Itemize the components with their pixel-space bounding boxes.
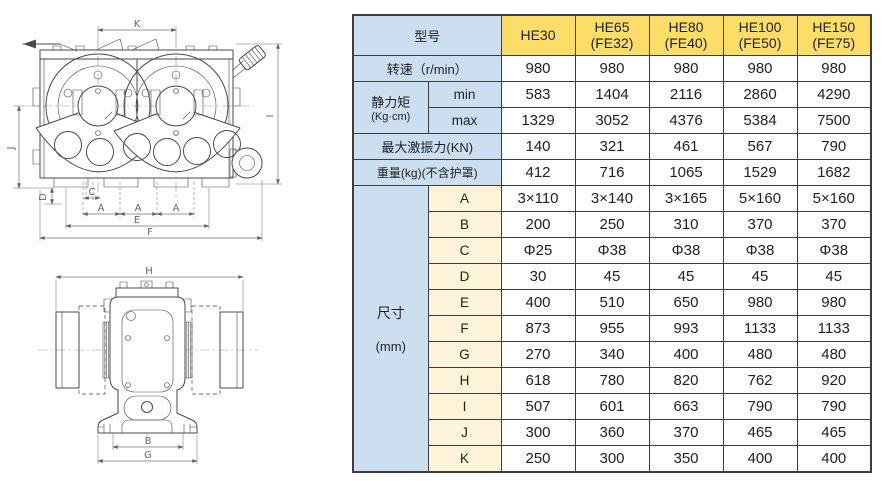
table-header-row: 型号 HE30 HE65 (FE32) HE80 (FE40) HE100 (F… <box>353 15 871 56</box>
speed-value-cell: 980 <box>501 56 575 82</box>
dim-key-cell: F <box>428 316 501 342</box>
dim-value-cell: 250 <box>501 446 575 473</box>
dim-row-G: G 270 340 400 480 480 <box>353 342 871 368</box>
dim-value-cell: 601 <box>575 394 649 420</box>
dim-row-B: B 200 250 310 370 370 <box>353 212 871 238</box>
speed-value-cell: 980 <box>723 56 797 82</box>
moment-max-cell: 4376 <box>649 108 723 134</box>
dim-key-cell: J <box>428 420 501 446</box>
weight-value-cell: 1065 <box>649 160 723 186</box>
moment-min-cell: 2116 <box>649 82 723 108</box>
dim-value-cell: 618 <box>501 368 575 394</box>
dim-value-cell: 663 <box>649 394 723 420</box>
dim-value-cell: 5×160 <box>797 186 871 212</box>
dim-label-a3: A <box>173 203 180 214</box>
dim-value-cell: 400 <box>501 290 575 316</box>
side-view-drawing: H B G <box>0 250 345 481</box>
dim-key-cell: G <box>428 342 501 368</box>
dim-value-cell: 310 <box>649 212 723 238</box>
dims-label-text: 尺寸 <box>354 303 428 323</box>
side-housing <box>98 281 197 433</box>
dim-label-f: F <box>147 227 153 238</box>
model-header-col-0: HE30 <box>501 15 575 56</box>
dim-label-h: H <box>145 266 153 277</box>
dim-label-a2: A <box>135 203 142 214</box>
speed-row-label: 转速（r/min） <box>353 56 501 82</box>
dim-value-cell: 30 <box>501 264 575 290</box>
dim-key-cell: H <box>428 368 501 394</box>
dim-value-cell: 873 <box>501 316 575 342</box>
dim-key-cell: I <box>428 394 501 420</box>
model-header-col-1: HE65 (FE32) <box>575 15 649 56</box>
force-row-label: 最大激振力(KN) <box>353 134 501 160</box>
dim-value-cell: 350 <box>649 446 723 473</box>
dims-unit-text: (mm) <box>354 339 428 354</box>
dim-value-cell: 465 <box>723 420 797 446</box>
dim-label-g: G <box>144 450 152 461</box>
direction-arrow <box>23 40 36 49</box>
dim-value-cell: 762 <box>723 368 797 394</box>
weight-value-cell: 412 <box>501 160 575 186</box>
dim-label-d: D <box>38 193 49 201</box>
force-value-cell: 140 <box>501 134 575 160</box>
dim-value-cell: 200 <box>501 212 575 238</box>
moment-row-label: 静力矩 (Kg·cm) <box>353 82 428 134</box>
dim-label-e: E <box>134 215 140 226</box>
dim-label-b: B <box>145 436 152 447</box>
dim-key-cell: K <box>428 446 501 473</box>
force-value-cell: 567 <box>723 134 797 160</box>
moment-max-cell: 7500 <box>797 108 871 134</box>
dim-row-D: D 30 45 45 45 45 <box>353 264 871 290</box>
force-value-cell: 461 <box>649 134 723 160</box>
dims-row-label: 尺寸 (mm) <box>353 186 428 473</box>
force-value-cell: 790 <box>797 134 871 160</box>
dim-key-cell: D <box>428 264 501 290</box>
speed-value-cell: 980 <box>575 56 649 82</box>
dim-label-a1: A <box>98 203 105 214</box>
moment-min-row: 静力矩 (Kg·cm) min 583 1404 2116 2860 4290 <box>353 82 871 108</box>
dim-value-cell: 3×140 <box>575 186 649 212</box>
dim-value-cell: 3×110 <box>501 186 575 212</box>
breather-plug <box>233 44 267 78</box>
moment-max-cell: 5384 <box>723 108 797 134</box>
catalog-page: K I J D C A A A E F <box>0 0 890 481</box>
dim-value-cell: 920 <box>797 368 871 394</box>
moment-min-cell: 583 <box>501 82 575 108</box>
dim-value-cell: Φ38 <box>723 238 797 264</box>
moment-max-row: max 1329 3052 4376 5384 7500 <box>353 108 871 134</box>
moment-unit-text: (Kg·cm) <box>354 111 428 123</box>
weight-value-cell: 716 <box>575 160 649 186</box>
moment-max-label: max <box>428 108 501 134</box>
spec-table: 型号 HE30 HE65 (FE32) HE80 (FE40) HE100 (F… <box>352 14 872 473</box>
dim-row-A: 尺寸 (mm) A 3×110 3×140 3×165 5×160 5×160 <box>353 186 871 212</box>
dim-value-cell: 45 <box>797 264 871 290</box>
dim-value-cell: 400 <box>723 446 797 473</box>
moment-min-cell: 1404 <box>575 82 649 108</box>
dim-value-cell: 300 <box>501 420 575 446</box>
dim-value-cell: 400 <box>649 342 723 368</box>
speed-value-cell: 980 <box>649 56 723 82</box>
dim-label-i: I <box>265 115 276 118</box>
force-value-cell: 321 <box>575 134 649 160</box>
dim-value-cell: 45 <box>723 264 797 290</box>
moment-min-cell: 2860 <box>723 82 797 108</box>
dim-value-cell: 790 <box>723 394 797 420</box>
weight-value-cell: 1529 <box>723 160 797 186</box>
model-header-col-4: HE150 (FE75) <box>797 15 871 56</box>
dim-value-cell: Φ38 <box>797 238 871 264</box>
dim-label-k: K <box>134 19 141 30</box>
dim-value-cell: 1133 <box>723 316 797 342</box>
dim-row-I: I 507 601 663 790 790 <box>353 394 871 420</box>
dim-value-cell: 340 <box>575 342 649 368</box>
dim-key-cell: E <box>428 290 501 316</box>
dim-row-J: J 300 360 370 465 465 <box>353 420 871 446</box>
moment-label-text: 静力矩 <box>354 92 428 111</box>
dim-value-cell: 3×165 <box>649 186 723 212</box>
dim-value-cell: 370 <box>797 212 871 238</box>
dim-value-cell: 980 <box>797 290 871 316</box>
dim-key-cell: A <box>428 186 501 212</box>
dim-value-cell: 5×160 <box>723 186 797 212</box>
force-row: 最大激振力(KN) 140 321 461 567 790 <box>353 134 871 160</box>
moment-min-cell: 4290 <box>797 82 871 108</box>
dim-value-cell: 480 <box>723 342 797 368</box>
dim-row-F: F 873 955 993 1133 1133 <box>353 316 871 342</box>
dim-value-cell: 790 <box>797 394 871 420</box>
dim-value-cell: 1133 <box>797 316 871 342</box>
dim-value-cell: 45 <box>575 264 649 290</box>
model-header-col-2: HE80 (FE40) <box>649 15 723 56</box>
dim-value-cell: 360 <box>575 420 649 446</box>
dim-value-cell: Φ38 <box>649 238 723 264</box>
dim-value-cell: 510 <box>575 290 649 316</box>
speed-row: 转速（r/min） 980 980 980 980 980 <box>353 56 871 82</box>
model-header-col-3: HE100 (FE50) <box>723 15 797 56</box>
dim-key-cell: B <box>428 212 501 238</box>
dim-value-cell: 370 <box>723 212 797 238</box>
dim-row-K: K 250 300 350 400 400 <box>353 446 871 473</box>
dim-value-cell: 45 <box>649 264 723 290</box>
speed-value-cell: 980 <box>797 56 871 82</box>
dim-value-cell: 780 <box>575 368 649 394</box>
eccentric-weights <box>36 106 241 172</box>
dim-value-cell: 400 <box>797 446 871 473</box>
weight-row: 重量(kg)(不含护罩) 412 716 1065 1529 1682 <box>353 160 871 186</box>
dim-value-cell: 480 <box>797 342 871 368</box>
weight-value-cell: 1682 <box>797 160 871 186</box>
dim-row-H: H 618 780 820 762 920 <box>353 368 871 394</box>
side-plug <box>230 148 262 178</box>
moment-max-cell: 1329 <box>501 108 575 134</box>
dim-key-cell: C <box>428 238 501 264</box>
dim-value-cell: 955 <box>575 316 649 342</box>
moment-max-cell: 3052 <box>575 108 649 134</box>
dim-value-cell: 465 <box>797 420 871 446</box>
dim-value-cell: Φ38 <box>575 238 649 264</box>
dim-row-E: E 400 510 650 980 980 <box>353 290 871 316</box>
dim-value-cell: 980 <box>723 290 797 316</box>
dim-value-cell: Φ25 <box>501 238 575 264</box>
dim-value-cell: 270 <box>501 342 575 368</box>
model-header-label: 型号 <box>353 15 501 56</box>
dim-value-cell: 250 <box>575 212 649 238</box>
dim-label-j: J <box>6 147 17 151</box>
front-view-drawing: K I J D C A A A E F <box>0 0 345 250</box>
dim-row-C: C Φ25 Φ38 Φ38 Φ38 Φ38 <box>353 238 871 264</box>
front-housing <box>23 39 240 187</box>
dim-label-c: C <box>89 187 96 198</box>
moment-min-label: min <box>428 82 501 108</box>
dim-value-cell: 300 <box>575 446 649 473</box>
dim-value-cell: 370 <box>649 420 723 446</box>
weight-row-label: 重量(kg)(不含护罩) <box>353 160 501 186</box>
dim-value-cell: 820 <box>649 368 723 394</box>
dim-value-cell: 507 <box>501 394 575 420</box>
dim-value-cell: 650 <box>649 290 723 316</box>
dim-value-cell: 993 <box>649 316 723 342</box>
